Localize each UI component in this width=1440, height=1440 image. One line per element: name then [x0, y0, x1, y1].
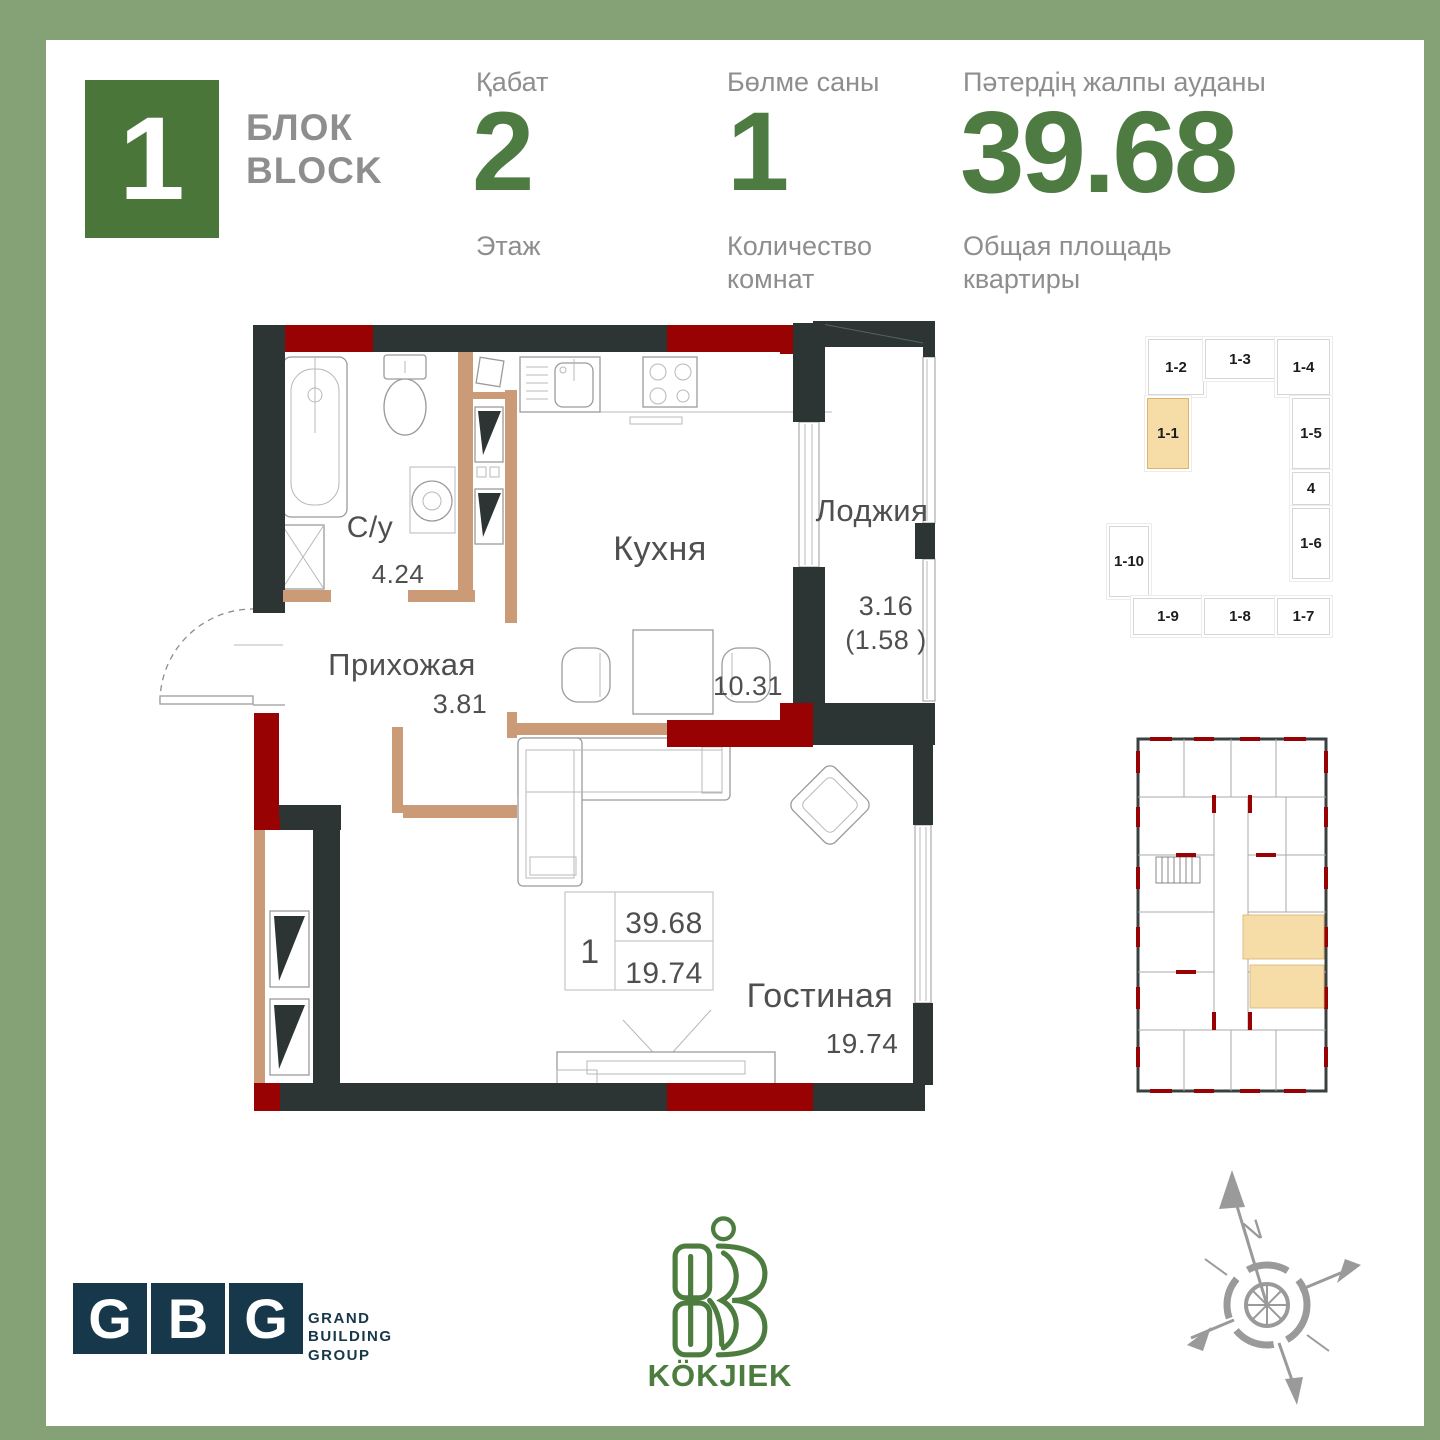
unit-cell-1-9[interactable]: 1-9: [1133, 598, 1203, 635]
stamp-total-area: 39.68: [625, 907, 703, 940]
stamp-living-area: 19.74: [625, 957, 703, 990]
block-number: 1: [119, 100, 185, 218]
area-value: 39.68: [960, 94, 1235, 210]
area-label-ru: Общая площадь квартиры: [963, 230, 1172, 296]
unit-cell-1-2[interactable]: 1-2: [1148, 339, 1204, 395]
rooms-label-ru: Количество комнат: [727, 230, 872, 296]
kokjiek-wordmark: KÖKJIEK: [640, 1358, 800, 1394]
room-loggia-area-reduced: (1.58 ): [845, 625, 927, 655]
unit-cell-1-4[interactable]: 1-4: [1277, 339, 1330, 395]
area-stamp: 1 39.68 19.74: [565, 892, 713, 990]
stove: [630, 357, 697, 424]
unit-cell-1-6[interactable]: 1-6: [1292, 508, 1330, 579]
sofa: [518, 738, 730, 886]
unit-cell-1-10[interactable]: 1-10: [1109, 526, 1149, 597]
room-hallway-area: 3.81: [433, 689, 488, 719]
stamp-rooms: 1: [580, 933, 599, 971]
block-label-kk: БЛОК: [246, 106, 383, 149]
washing-machine: [410, 467, 455, 533]
room-bathroom-area: 4.24: [372, 559, 425, 589]
room-living-label: Гостиная: [747, 977, 894, 1015]
room-kitchen-area: 10.31: [713, 671, 783, 701]
unit-cell-1-5[interactable]: 1-5: [1292, 398, 1330, 469]
room-loggia-label: Лоджия: [816, 493, 929, 528]
window-living: [915, 825, 931, 1003]
kokjiek-logo-icon: [660, 1215, 780, 1360]
room-living-area: 19.74: [826, 1028, 899, 1059]
room-loggia-area: 3.16: [859, 591, 914, 621]
gbg-caption: GRAND BUILDING GROUP: [308, 1310, 393, 1365]
floor-label-ru: Этаж: [476, 230, 541, 263]
unit-selector: 1-2 1-3 1-4 1-1 1-5 4 1-6 1-10 1-9 1-8 1…: [1105, 335, 1333, 640]
gbg-letter-b: B: [151, 1283, 225, 1354]
bathtub: [283, 357, 347, 517]
flyer-page: { "header": { "block_badge": "1", "block…: [0, 0, 1440, 1440]
gbg-logo: G B G: [73, 1283, 303, 1354]
unit-cell-4[interactable]: 4: [1292, 472, 1330, 505]
room-bathroom-label: С/у: [347, 511, 394, 544]
gbg-letter-g2: G: [229, 1283, 303, 1354]
gbg-letter-g1: G: [73, 1283, 147, 1354]
compass-rose-icon: N: [1175, 1165, 1365, 1420]
unit-cell-1-7[interactable]: 1-7: [1277, 598, 1330, 635]
shower-box: [282, 525, 324, 589]
block-label: БЛОК BLOCK: [246, 106, 383, 193]
rooms-value: 1: [727, 96, 787, 208]
duct-shaft-bathroom: [475, 357, 504, 544]
room-hallway-label: Прихожая: [328, 647, 476, 682]
block-badge: 1: [85, 80, 219, 238]
armchair: [788, 763, 873, 848]
floor-value: 2: [472, 96, 532, 208]
unit-cell-1-1-selected[interactable]: 1-1: [1147, 398, 1189, 469]
duct-shaft-lower: [270, 911, 309, 1075]
floor-plan: 1 39.68 19.74 С/у 4.24 Кухня 10.31 Лоджи…: [158, 315, 960, 1150]
block-label-en: BLOCK: [246, 149, 383, 192]
room-kitchen-label: Кухня: [613, 530, 707, 568]
compass-north-label: N: [1238, 1213, 1266, 1249]
level-mini-plan: [1136, 737, 1328, 1093]
unit-cell-1-3[interactable]: 1-3: [1205, 339, 1275, 379]
tv-stand: [557, 1010, 775, 1084]
toilet: [384, 355, 426, 435]
entrance-door: [160, 609, 285, 705]
unit-cell-1-8[interactable]: 1-8: [1204, 598, 1276, 635]
